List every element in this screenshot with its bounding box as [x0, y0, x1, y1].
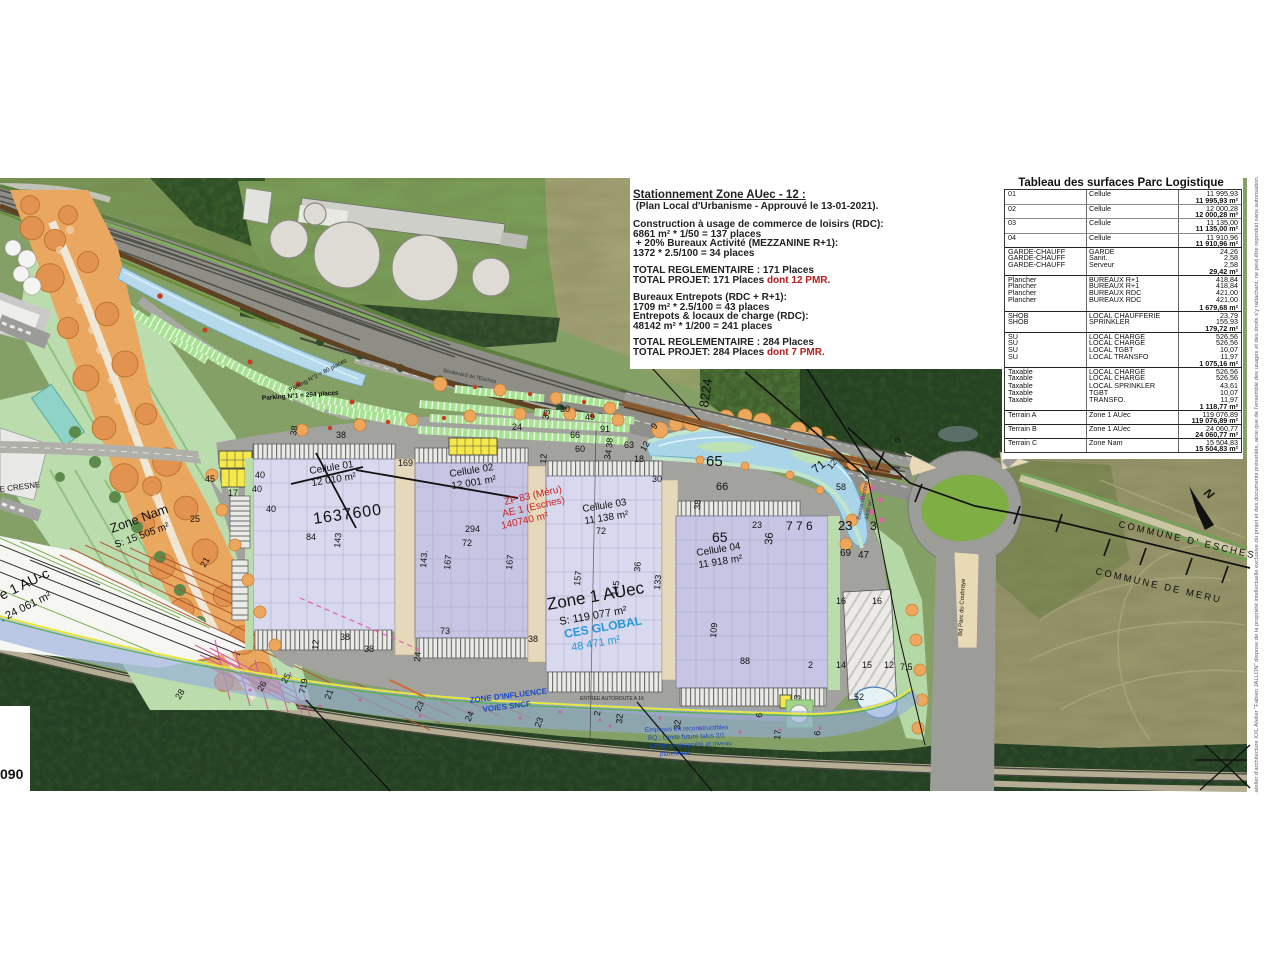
svg-text:18: 18 [634, 454, 644, 464]
svg-text:7 7 6: 7 7 6 [786, 519, 813, 533]
svg-text:3: 3 [870, 519, 877, 533]
svg-text:167: 167 [504, 554, 515, 570]
svg-text:36: 36 [632, 561, 643, 572]
svg-text:15: 15 [862, 660, 872, 670]
svg-text:14: 14 [836, 660, 846, 670]
svg-text:12: 12 [884, 660, 894, 670]
svg-text:16: 16 [836, 596, 846, 606]
svg-text:plateforme: plateforme [660, 750, 691, 758]
svg-text:090: 090 [0, 766, 24, 782]
svg-text:169: 169 [398, 458, 413, 468]
svg-text:34: 34 [602, 449, 614, 461]
svg-text:38: 38 [288, 425, 300, 437]
svg-text:72: 72 [596, 526, 606, 536]
svg-text:167: 167 [442, 554, 453, 570]
svg-text:23: 23 [838, 518, 852, 533]
svg-text:294: 294 [465, 524, 480, 534]
svg-text:38: 38 [692, 499, 703, 510]
svg-text:60: 60 [575, 444, 585, 454]
svg-text:6: 6 [812, 730, 822, 736]
svg-text:143.: 143. [418, 550, 429, 568]
svg-text:47: 47 [858, 550, 870, 561]
svg-text:36: 36 [763, 532, 776, 545]
svg-text:30: 30 [560, 404, 570, 414]
svg-text:91: 91 [600, 424, 610, 434]
svg-text:16: 16 [872, 596, 882, 606]
svg-text:88: 88 [740, 656, 750, 666]
svg-text:65: 65 [706, 453, 723, 470]
svg-text:12: 12 [310, 639, 321, 650]
svg-text:17: 17 [772, 729, 783, 740]
svg-text:145: 145 [610, 580, 621, 596]
svg-text:23: 23 [752, 520, 762, 530]
svg-text:65: 65 [712, 529, 728, 545]
svg-text:133: 133 [652, 574, 663, 590]
svg-text:143: 143 [332, 532, 343, 548]
svg-text:ENTREE AUTOROUTE A 16: ENTREE AUTOROUTE A 16 [580, 696, 644, 702]
svg-text:38: 38 [604, 437, 615, 448]
svg-text:25: 25 [190, 514, 200, 524]
svg-text:63: 63 [624, 440, 634, 450]
svg-text:69: 69 [840, 548, 852, 559]
svg-text:72: 72 [462, 538, 472, 548]
svg-text:24: 24 [512, 422, 522, 432]
svg-text:40: 40 [266, 504, 276, 514]
svg-text:12: 12 [538, 453, 549, 464]
svg-text:157: 157 [572, 570, 583, 586]
svg-text:52: 52 [854, 692, 864, 702]
svg-text:38: 38 [340, 632, 350, 642]
svg-text:58: 58 [836, 482, 846, 492]
svg-text:38: 38 [528, 634, 538, 644]
svg-text:32: 32 [672, 719, 683, 730]
svg-text:40: 40 [255, 470, 265, 480]
svg-text:66: 66 [570, 430, 580, 440]
svg-text:38: 38 [364, 644, 374, 654]
svg-text:17: 17 [228, 488, 238, 498]
svg-text:66: 66 [716, 481, 728, 493]
svg-text:30: 30 [652, 474, 662, 484]
svg-text:109: 109 [708, 622, 719, 638]
svg-text:7,5: 7,5 [900, 662, 913, 672]
svg-text:24: 24 [412, 651, 423, 662]
svg-text:2: 2 [592, 710, 602, 716]
svg-text:49: 49 [585, 412, 595, 422]
svg-text:32: 32 [614, 713, 625, 724]
svg-text:45: 45 [205, 474, 215, 484]
svg-text:6: 6 [754, 712, 764, 718]
svg-text:84: 84 [306, 532, 316, 542]
svg-text:3: 3 [792, 694, 802, 700]
svg-text:73: 73 [440, 626, 450, 636]
svg-text:2: 2 [808, 660, 813, 670]
svg-text:38: 38 [336, 430, 346, 440]
svg-text:40: 40 [252, 484, 262, 494]
